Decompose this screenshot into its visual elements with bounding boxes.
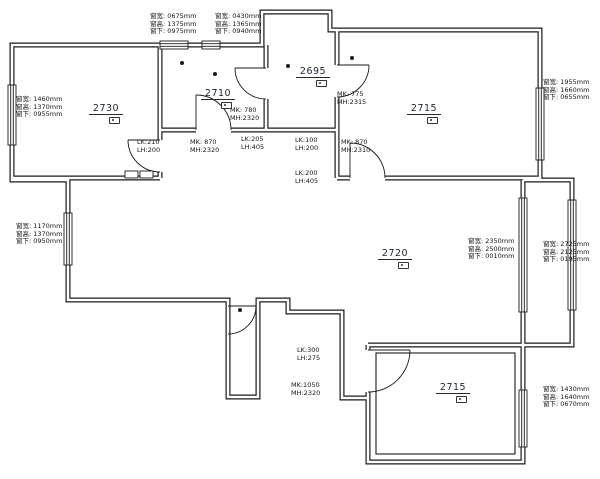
room-height-value: 2715 bbox=[407, 103, 441, 115]
room-height-label-bottom-balcony: 2715 bbox=[431, 375, 475, 403]
room-height-value: 2710 bbox=[201, 88, 235, 100]
door-label-line: MH:2310 bbox=[341, 147, 370, 155]
window-label-line: 窗下: 0195mm bbox=[543, 256, 589, 264]
door-label-line: MH:2320 bbox=[190, 147, 219, 155]
window-label-line: 窗下: 0975mm bbox=[150, 28, 196, 36]
window-symbol-top-first bbox=[160, 41, 188, 49]
window-label-line: 窗下: 0670mm bbox=[543, 401, 589, 409]
door-label-bottom-balcony: MK:1050 MH:2320 bbox=[291, 382, 320, 397]
room-height-label-top-small: 2695 bbox=[291, 59, 335, 87]
laser-level-icon bbox=[456, 396, 467, 403]
beam-label-line: LH:200 bbox=[137, 147, 160, 155]
room-height-value: 2695 bbox=[296, 66, 330, 78]
window-label-living-right: 窗宽: 2350mm 窗高: 2500mm 窗下: 0010mm bbox=[468, 238, 514, 261]
window-label-top-second: 窗宽: 0430mm 窗高: 1365mm 窗下: 0940mm bbox=[215, 13, 261, 36]
window-label-line: 窗下: 0955mm bbox=[16, 111, 62, 119]
door-label-line: MH:2320 bbox=[230, 115, 259, 123]
room-height-label-mid-bedroom: 2710 bbox=[196, 81, 240, 109]
floor-plan: 窗宽: 1460mm 窗高: 1370mm 窗下: 0955mm 窗宽: 117… bbox=[0, 0, 600, 479]
window-label-line: 窗下: 0940mm bbox=[215, 28, 261, 36]
radiator-symbol bbox=[140, 171, 153, 178]
laser-level-icon bbox=[109, 117, 120, 124]
measure-point-dot bbox=[238, 308, 242, 312]
window-label-line: 窗下: 0655mm bbox=[543, 94, 589, 102]
window-label-top-first: 窗宽: 0675mm 窗高: 1375mm 窗下: 0975mm bbox=[150, 13, 196, 36]
window-label-line: 窗下: 0950mm bbox=[16, 238, 62, 246]
laser-level-icon bbox=[221, 102, 232, 109]
beam-label-hall-right: LK:100 LH:200 bbox=[295, 137, 318, 152]
window-label-left-lower: 窗宽: 1170mm 窗高: 1370mm 窗下: 0950mm bbox=[16, 223, 62, 246]
laser-level-icon bbox=[316, 80, 327, 87]
window-label-balcony-right: 窗宽: 2725mm 窗高: 2125mm 窗下: 0195mm bbox=[543, 241, 589, 264]
door-label-right-bedroom: MK: 870 MH:2310 bbox=[341, 139, 370, 154]
laser-level-icon bbox=[427, 117, 438, 124]
window-label-bottom-right: 窗宽: 1430mm 窗高: 1640mm 窗下: 0670mm bbox=[543, 386, 589, 409]
beam-label-line: LH:405 bbox=[241, 144, 264, 152]
measure-point-dot bbox=[350, 56, 354, 60]
measure-point-dot bbox=[213, 72, 217, 76]
measure-point-dot bbox=[180, 61, 184, 65]
beam-label-line: LH:405 bbox=[295, 178, 318, 186]
door-label-top-small: MK: 775 MH:2315 bbox=[337, 91, 366, 106]
beam-label-living-top: LK:200 LH:405 bbox=[295, 170, 318, 185]
room-height-label-right-bedroom: 2715 bbox=[402, 96, 446, 124]
window-symbol-left-upper bbox=[8, 85, 16, 145]
window-label-line: 窗下: 0010mm bbox=[468, 253, 514, 261]
laser-level-icon bbox=[398, 262, 409, 269]
radiator-symbol bbox=[125, 171, 138, 178]
door-label-line: MH:2315 bbox=[337, 99, 366, 107]
measure-point-dot bbox=[286, 64, 290, 68]
room-height-value: 2715 bbox=[436, 382, 470, 394]
window-symbol-top-second bbox=[202, 41, 220, 49]
beam-label-line: LH:275 bbox=[297, 355, 320, 363]
beam-label-hall-mid: LK:205 LH:405 bbox=[241, 136, 264, 151]
window-label-right-top: 窗宽: 1955mm 窗高: 1660mm 窗下: 0655mm bbox=[543, 79, 589, 102]
room-height-value: 2720 bbox=[378, 248, 412, 260]
door-label-hall-left: MK: 870 MH:2320 bbox=[190, 139, 219, 154]
beam-label-line: LH:200 bbox=[295, 145, 318, 153]
door-symbols bbox=[128, 65, 410, 392]
window-symbol-left-lower bbox=[64, 213, 72, 265]
door-symbol-bottom-balcony bbox=[368, 350, 410, 392]
beam-label-hall-left: LK:210 LH:200 bbox=[137, 139, 160, 154]
window-symbol-bottom-right bbox=[519, 390, 527, 447]
beam-label-balcony-door: LK:300 LH:275 bbox=[297, 347, 320, 362]
room-height-label-left-bedroom: 2730 bbox=[84, 96, 128, 124]
balcony-inner-frame bbox=[376, 353, 515, 454]
window-label-left-upper: 窗宽: 1460mm 窗高: 1370mm 窗下: 0955mm bbox=[16, 96, 62, 119]
door-label-mid-bedroom: MK: 780 MH:2320 bbox=[230, 107, 259, 122]
window-symbol-living-right bbox=[519, 198, 527, 312]
room-height-value: 2730 bbox=[89, 103, 123, 115]
door-label-line: MH:2320 bbox=[291, 390, 320, 398]
door-symbol-entry bbox=[228, 306, 256, 334]
room-height-label-living: 2720 bbox=[373, 241, 417, 269]
